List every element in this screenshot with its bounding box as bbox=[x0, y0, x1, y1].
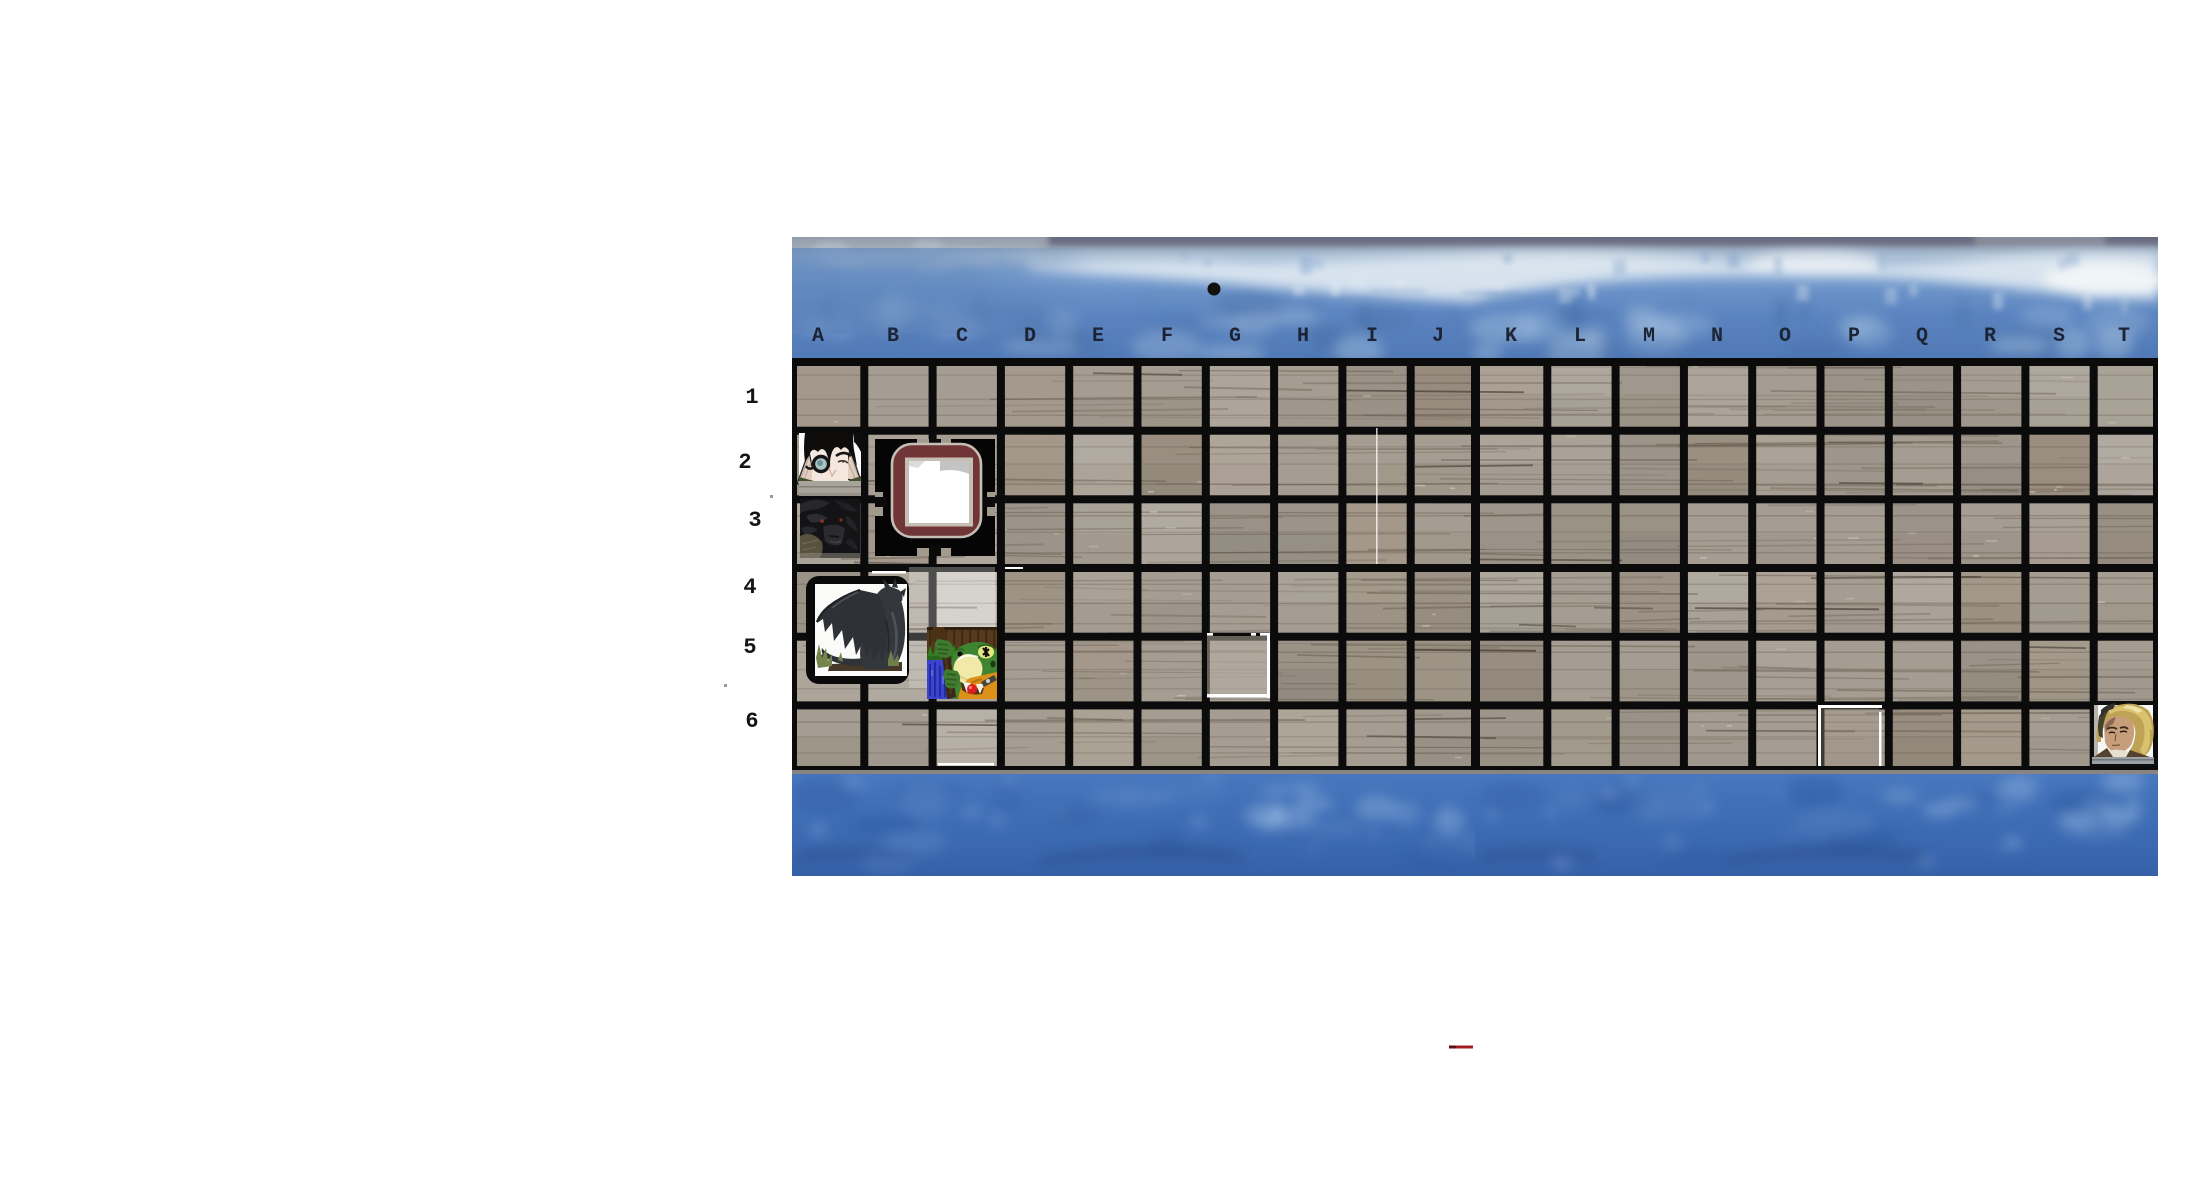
svg-text:A: A bbox=[812, 325, 824, 348]
svg-text:B: B bbox=[887, 325, 899, 348]
svg-text:R: R bbox=[1984, 325, 1996, 348]
svg-text:I: I bbox=[1366, 325, 1378, 348]
svg-text:E: E bbox=[1092, 325, 1104, 348]
svg-text:S: S bbox=[2053, 325, 2065, 348]
svg-text:P: P bbox=[1848, 325, 1860, 348]
svg-text:6: 6 bbox=[745, 709, 758, 734]
svg-text:5: 5 bbox=[743, 635, 756, 660]
svg-text:O: O bbox=[1779, 325, 1791, 348]
svg-text:2: 2 bbox=[738, 450, 751, 475]
svg-text:J: J bbox=[1432, 325, 1444, 348]
svg-text:K: K bbox=[1505, 325, 1517, 348]
svg-text:N: N bbox=[1711, 325, 1723, 348]
svg-text:H: H bbox=[1297, 325, 1309, 348]
svg-text:F: F bbox=[1161, 325, 1173, 348]
svg-text:4: 4 bbox=[743, 575, 756, 600]
svg-text:D: D bbox=[1024, 325, 1036, 348]
svg-text:1: 1 bbox=[745, 385, 758, 410]
svg-text:3: 3 bbox=[748, 508, 761, 533]
svg-text:L: L bbox=[1574, 325, 1586, 348]
svg-text:T: T bbox=[2118, 325, 2130, 348]
svg-text:G: G bbox=[1229, 325, 1241, 348]
svg-text:Q: Q bbox=[1916, 325, 1928, 348]
svg-text:C: C bbox=[956, 325, 968, 348]
svg-text:M: M bbox=[1643, 325, 1655, 348]
